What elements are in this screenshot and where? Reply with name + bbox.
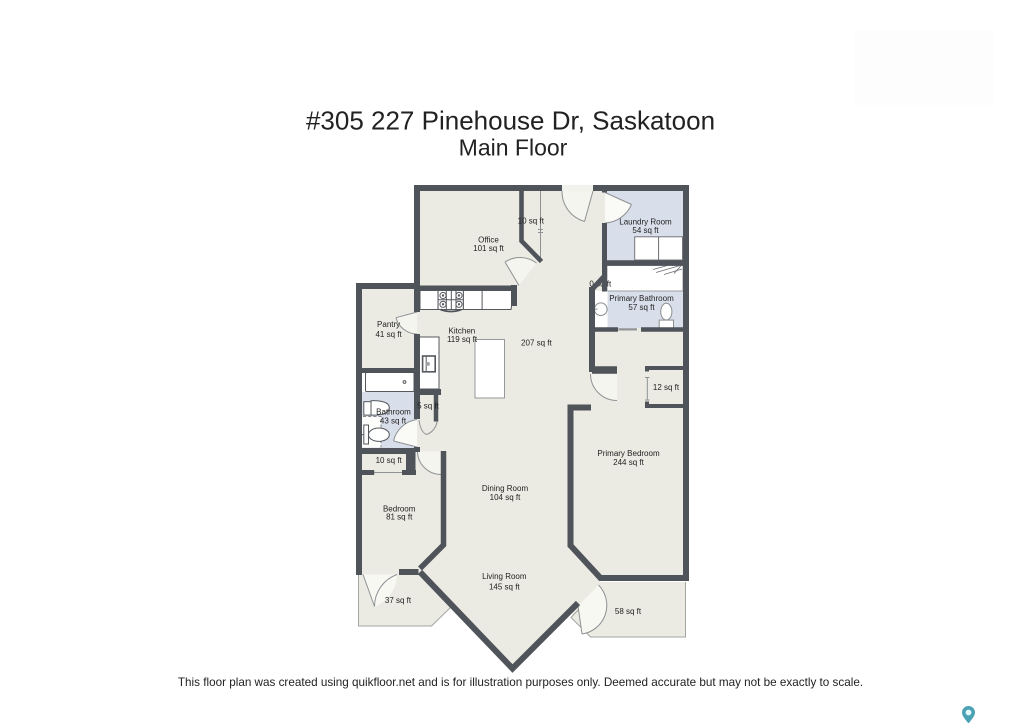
svg-text:This floor plan was created us: This floor plan was created using quikfl… <box>178 676 863 689</box>
svg-text:10 sq ft: 10 sq ft <box>376 456 403 465</box>
svg-text:Pantry: Pantry <box>377 320 400 329</box>
svg-text:Primary Bathroom: Primary Bathroom <box>609 294 674 303</box>
svg-text:57 sq ft: 57 sq ft <box>628 303 655 312</box>
svg-text:145 sq ft: 145 sq ft <box>489 583 520 592</box>
svg-text:54 sq ft: 54 sq ft <box>632 226 659 235</box>
svg-text:Bathroom: Bathroom <box>376 408 411 417</box>
svg-text:12 sq ft: 12 sq ft <box>653 383 680 392</box>
svg-text:41 sq ft: 41 sq ft <box>375 330 402 339</box>
svg-text:37 sq ft: 37 sq ft <box>385 596 412 605</box>
svg-text:43 sq ft: 43 sq ft <box>380 417 407 426</box>
svg-text:Primary Bedroom: Primary Bedroom <box>597 449 660 458</box>
svg-text:81 sq ft: 81 sq ft <box>386 513 413 522</box>
svg-text:101 sq ft: 101 sq ft <box>473 244 504 253</box>
svg-text:207 sq ft: 207 sq ft <box>521 338 552 347</box>
svg-text:119 sq ft: 119 sq ft <box>447 335 478 344</box>
svg-text:Dining Room: Dining Room <box>482 484 529 493</box>
svg-text:10 sq ft: 10 sq ft <box>518 217 545 226</box>
svg-text:Living Room: Living Room <box>482 572 527 581</box>
svg-text:104 sq ft: 104 sq ft <box>490 493 521 502</box>
svg-text:#305 227 Pinehouse Dr, Saskato: #305 227 Pinehouse Dr, Saskatoon <box>306 105 715 135</box>
svg-text:5 sq ft: 5 sq ft <box>417 402 440 411</box>
svg-text:Main Floor: Main Floor <box>459 135 568 161</box>
svg-text:58 sq ft: 58 sq ft <box>615 607 642 616</box>
svg-text:244 sq ft: 244 sq ft <box>613 458 644 467</box>
